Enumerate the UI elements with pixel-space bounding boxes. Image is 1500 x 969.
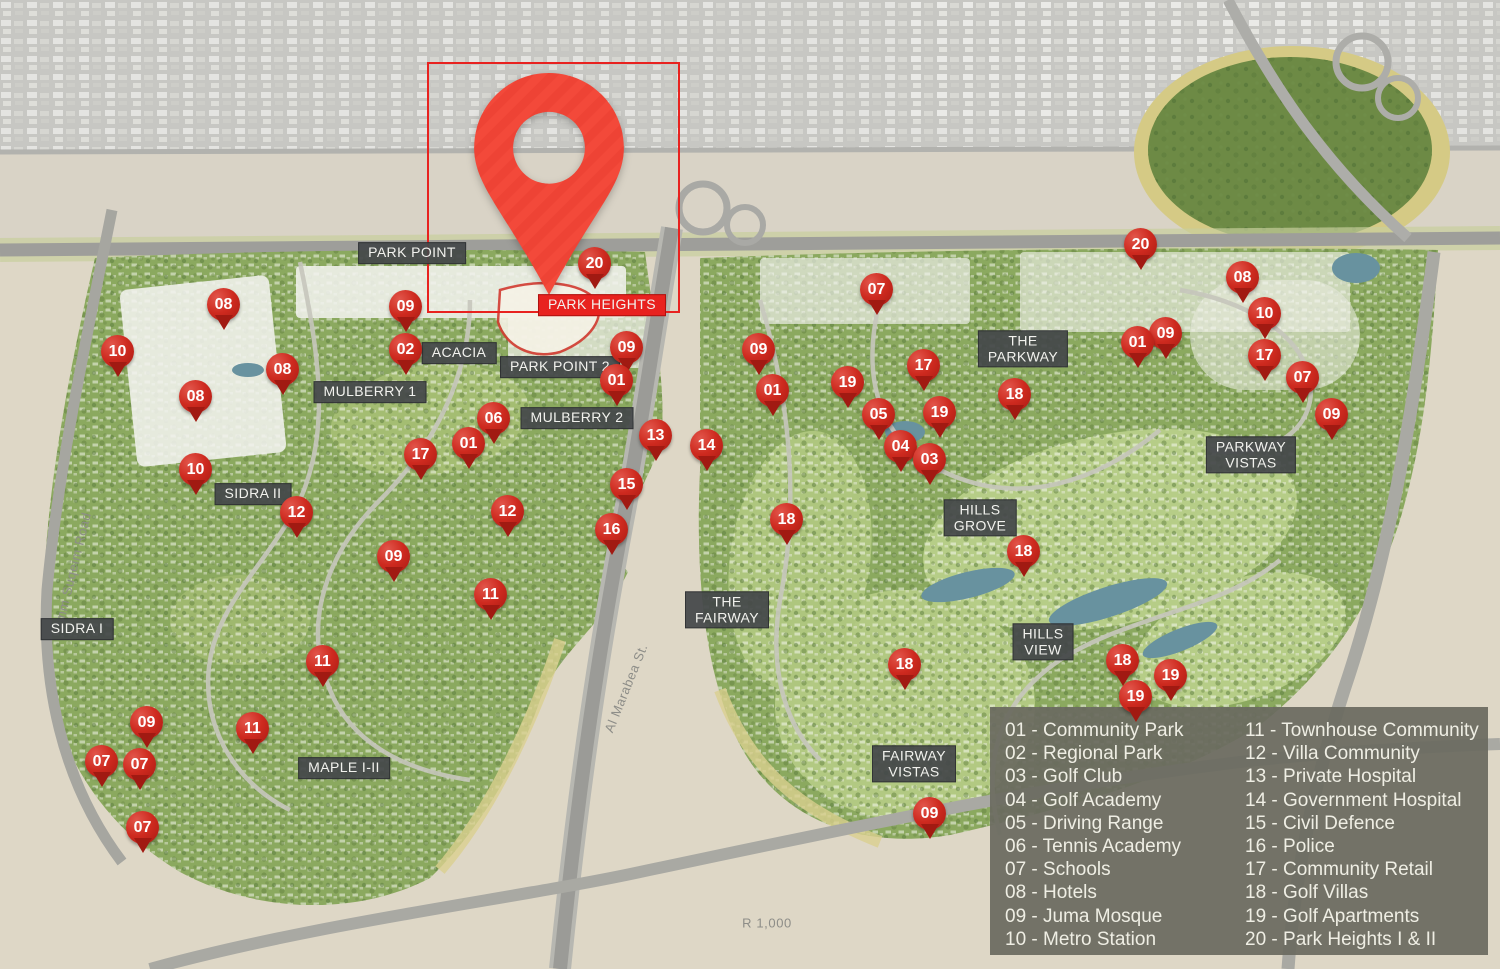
legend-item-13: 13 - Private Hospital [1245,765,1479,788]
legend-item-02: 02 - Regional Park [1005,742,1183,765]
map-legend: 01 - Community Park02 - Regional Park03 … [990,707,1488,955]
marker-number: 10 [1248,297,1281,330]
marker-number: 10 [101,335,134,368]
marker-number: 01 [452,427,485,460]
marker-number: 17 [907,349,940,382]
map-marker-18[interactable]: 18 [1007,535,1041,585]
legend-column-2: 11 - Townhouse Community12 - Villa Commu… [1245,719,1479,951]
map-marker-08[interactable]: 08 [207,288,241,338]
map-marker-14[interactable]: 14 [690,429,724,479]
marker-number: 20 [578,247,611,280]
marker-number: 07 [123,748,156,781]
marker-number: 01 [756,374,789,407]
map-marker-18[interactable]: 18 [888,648,922,698]
marker-number: 08 [207,288,240,321]
legend-item-09: 09 - Juma Mosque [1005,905,1183,928]
map-marker-07[interactable]: 07 [126,811,160,861]
area-label-park-point: PARK POINT [358,242,466,264]
marker-number: 09 [610,331,643,364]
marker-number: 09 [389,290,422,323]
marker-number: 17 [404,438,437,471]
marker-number: 18 [1007,535,1040,568]
map-marker-09[interactable]: 09 [1315,398,1349,448]
marker-number: 10 [179,453,212,486]
marker-number: 03 [913,443,946,476]
marker-number: 11 [474,578,507,611]
marker-number: 19 [1154,659,1187,692]
area-label-the-parkway: THE PARKWAY [978,330,1068,367]
road-label-r-1-000: R 1,000 [742,916,792,931]
area-label-hills-view: HILLS VIEW [1013,623,1074,660]
map-marker-01[interactable]: 01 [756,374,790,424]
area-label-parkway-vistas: PARKWAY VISTAS [1206,436,1296,473]
map-marker-01[interactable]: 01 [1121,326,1155,376]
map-marker-08[interactable]: 08 [266,353,300,403]
marker-number: 13 [639,419,672,452]
area-label-park-heights: PARK HEIGHTS [538,294,666,316]
legend-item-10: 10 - Metro Station [1005,928,1183,951]
legend-item-01: 01 - Community Park [1005,719,1183,742]
legend-item-06: 06 - Tennis Academy [1005,835,1183,858]
map-marker-16[interactable]: 16 [595,513,629,563]
map-marker-18[interactable]: 18 [770,503,804,553]
map-marker-11[interactable]: 11 [474,578,508,628]
map-marker-12[interactable]: 12 [280,496,314,546]
marker-number: 09 [913,797,946,830]
map-marker-09[interactable]: 09 [377,540,411,590]
map-marker-01[interactable]: 01 [600,364,634,414]
map-marker-19[interactable]: 19 [923,396,957,446]
marker-number: 08 [179,380,212,413]
area-label-fairway-vistas: FAIRWAY VISTAS [872,745,956,782]
marker-number: 11 [306,645,339,678]
legend-item-15: 15 - Civil Defence [1245,812,1479,835]
legend-item-03: 03 - Golf Club [1005,765,1183,788]
marker-number: 12 [491,495,524,528]
marker-number: 07 [126,811,159,844]
legend-item-17: 17 - Community Retail [1245,858,1479,881]
map-marker-02[interactable]: 02 [389,333,423,383]
legend-item-05: 05 - Driving Range [1005,812,1183,835]
marker-number: 20 [1124,228,1157,261]
marker-number: 18 [998,378,1031,411]
legend-item-14: 14 - Government Hospital [1245,789,1479,812]
map-marker-18[interactable]: 18 [998,378,1032,428]
legend-item-16: 16 - Police [1245,835,1479,858]
legend-column-1: 01 - Community Park02 - Regional Park03 … [1005,719,1183,951]
marker-number: 02 [389,333,422,366]
marker-number: 15 [610,468,643,501]
area-label-the-fairway: THE FAIRWAY [685,591,769,628]
area-label-maple-i-ii: MAPLE I-II [298,757,390,779]
marker-number: 08 [266,353,299,386]
map-marker-07[interactable]: 07 [860,273,894,323]
legend-item-11: 11 - Townhouse Community [1245,719,1479,742]
map-marker-10[interactable]: 10 [101,335,135,385]
map-marker-01[interactable]: 01 [452,427,486,477]
map-marker-19[interactable]: 19 [1119,680,1153,730]
map-marker-12[interactable]: 12 [491,495,525,545]
marker-number: 09 [742,333,775,366]
legend-item-08: 08 - Hotels [1005,881,1183,904]
marker-number: 19 [923,396,956,429]
map-marker-20[interactable]: 20 [1124,228,1158,278]
marker-number: 18 [770,503,803,536]
legend-item-18: 18 - Golf Villas [1245,881,1479,904]
area-label-acacia: ACACIA [422,342,497,364]
marker-number: 05 [862,398,895,431]
marker-number: 09 [130,706,163,739]
area-label-mulberry-1: MULBERRY 1 [314,381,427,403]
marker-number: 16 [595,513,628,546]
map-marker-17[interactable]: 17 [1248,339,1282,389]
map-marker-17[interactable]: 17 [907,349,941,399]
marker-number: 12 [280,496,313,529]
marker-number: 07 [85,745,118,778]
marker-number: 11 [236,712,269,745]
marker-number: 01 [1121,326,1154,359]
legend-item-07: 07 - Schools [1005,858,1183,881]
legend-item-19: 19 - Golf Apartments [1245,905,1479,928]
map-marker-08[interactable]: 08 [179,380,213,430]
marker-number: 01 [600,364,633,397]
marker-number: 18 [1106,644,1139,677]
map-marker-09[interactable]: 09 [913,797,947,847]
marker-number: 09 [377,540,410,573]
map-marker-13[interactable]: 13 [639,419,673,469]
marker-number: 07 [860,273,893,306]
masterplan-map: Umm Suqeim RoadAl Marabea St.R 1,000 PAR… [0,0,1500,969]
map-marker-11[interactable]: 11 [236,712,270,762]
map-marker-07[interactable]: 07 [85,745,119,795]
marker-number: 19 [831,366,864,399]
marker-number: 14 [690,429,723,462]
map-marker-20[interactable]: 20 [578,247,612,297]
map-marker-11[interactable]: 11 [306,645,340,695]
map-marker-17[interactable]: 17 [404,438,438,488]
marker-number: 19 [1119,680,1152,713]
map-marker-10[interactable]: 10 [179,453,213,503]
legend-item-04: 04 - Golf Academy [1005,789,1183,812]
marker-number: 17 [1248,339,1281,372]
legend-item-12: 12 - Villa Community [1245,742,1479,765]
map-marker-15[interactable]: 15 [610,468,644,518]
marker-number: 18 [888,648,921,681]
area-label-sidra-i: SIDRA I [41,618,114,640]
map-marker-19[interactable]: 19 [831,366,865,416]
marker-number: 07 [1286,361,1319,394]
map-marker-07[interactable]: 07 [123,748,157,798]
map-marker-03[interactable]: 03 [913,443,947,493]
area-label-hills-grove: HILLS GROVE [944,499,1017,536]
marker-number: 08 [1226,261,1259,294]
map-marker-19[interactable]: 19 [1154,659,1188,709]
legend-item-20: 20 - Park Heights I & II [1245,928,1479,951]
marker-number: 09 [1315,398,1348,431]
